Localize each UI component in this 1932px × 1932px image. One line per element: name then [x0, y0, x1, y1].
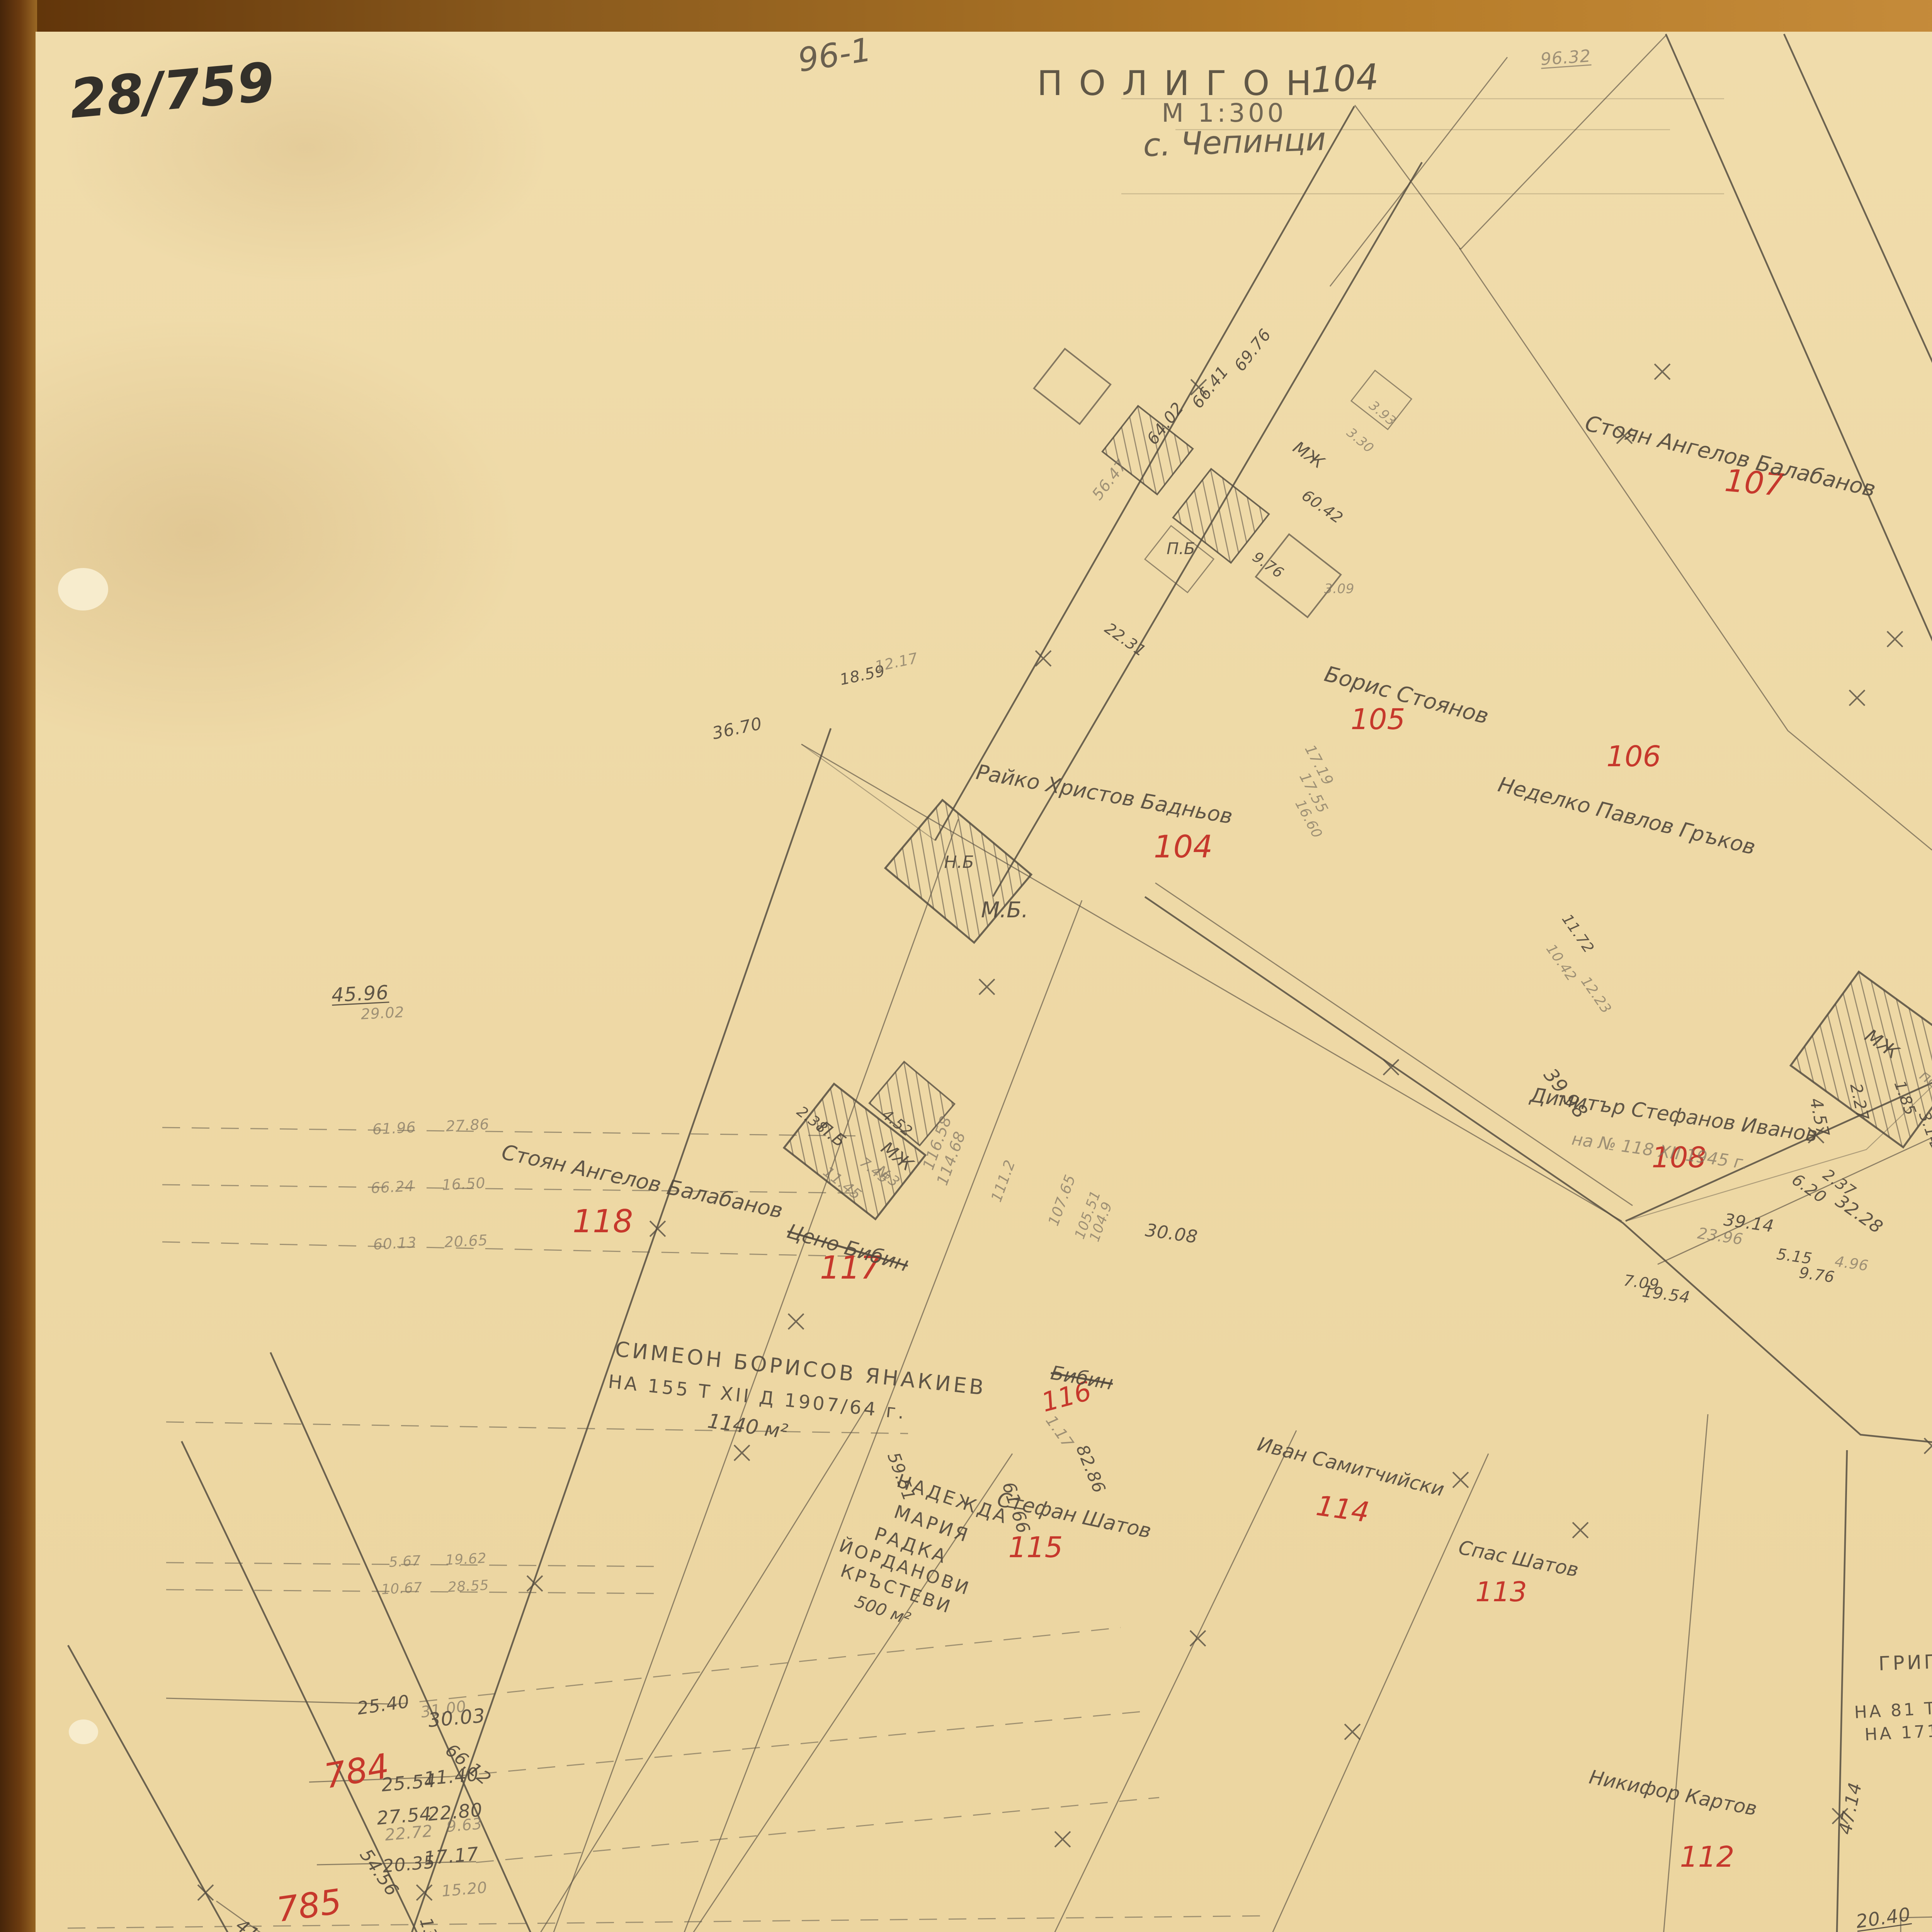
- measurement: 25.40: [356, 1692, 410, 1718]
- map-title-number: 104: [1310, 59, 1379, 98]
- parcel-number-118: 118: [573, 1206, 633, 1238]
- measurement: 2.38: [794, 1104, 830, 1136]
- parcel-owner-104: Райко Христов Бадньов: [975, 762, 1234, 827]
- measurement: 9.63: [446, 1816, 483, 1835]
- measurement: 1.17: [1043, 1413, 1076, 1451]
- measurement: 45.96: [331, 983, 389, 1005]
- measurement: 96.32: [1540, 48, 1591, 68]
- parcel-number-115: 115: [1008, 1533, 1063, 1562]
- measurement: 28.55: [447, 1578, 489, 1595]
- measurement: 9.76: [1798, 1265, 1836, 1285]
- measurement: 11.45: [821, 1164, 864, 1202]
- parcel-number-104: 104: [1154, 832, 1213, 862]
- building-label: М.Б.: [981, 900, 1028, 921]
- measurement: 12.23: [1578, 975, 1614, 1016]
- building-label: МЖ: [1862, 1026, 1902, 1062]
- parcel-owner-112: Никифор Картов: [1588, 1767, 1759, 1818]
- parcel-number-784: 784: [322, 1749, 392, 1794]
- measurement: 82.86: [1073, 1442, 1108, 1495]
- measurement: 66.41: [1189, 363, 1231, 411]
- measurement: 4.52: [879, 1107, 915, 1139]
- measurement: 69.76: [1231, 326, 1274, 374]
- measurement: 20.40: [1855, 1905, 1912, 1931]
- parcel-number-114: 114: [1315, 1492, 1371, 1526]
- measurement: 60.42: [1299, 488, 1345, 527]
- measurement: 16.50: [442, 1175, 486, 1192]
- measurement: 1.85: [1891, 1079, 1918, 1117]
- parcel-number-113: 113: [1475, 1578, 1527, 1605]
- parcel-note-111: НА 81 Т XXV Д 4665/67г. 933м²: [1854, 1687, 1932, 1721]
- parcel-area-value: 1140 м²: [706, 1411, 789, 1442]
- measurement: 36.70: [711, 715, 764, 742]
- measurement: 66.24: [371, 1179, 415, 1196]
- measurement: 29.02: [361, 1005, 405, 1022]
- measurement: 107.65: [1046, 1173, 1078, 1228]
- measurement: 5.15: [1776, 1247, 1813, 1267]
- measurement: 3.93: [1367, 399, 1398, 428]
- parcel-owner-113: Спас Шатов: [1457, 1537, 1580, 1580]
- measurement: 17.17: [423, 1845, 480, 1868]
- measurement: 15.20: [441, 1880, 488, 1899]
- map-scale: М 1:300: [1162, 100, 1287, 126]
- parcel-owner-105: Борис Стоянов: [1322, 663, 1491, 728]
- measurement: 30.03: [427, 1706, 486, 1730]
- measurement: 22.72: [384, 1823, 434, 1844]
- measurement: 10.98: [1927, 1137, 1932, 1185]
- measurement: 19.54: [1641, 1283, 1691, 1306]
- measurement: 25.54: [381, 1771, 437, 1794]
- measurement: 12.17: [874, 651, 919, 674]
- parcel-number-112: 112: [1680, 1843, 1734, 1871]
- measurement: 60.13: [373, 1235, 417, 1252]
- map-labels-layer: 1071051061041081101181171161151141131121…: [0, 0, 1932, 1932]
- parcel-owner-111: ГРИГОР НЕДЯКОВ: [1878, 1646, 1932, 1673]
- map-title: ПОЛИГОН: [1037, 66, 1328, 100]
- measurement: 22.31: [1102, 621, 1148, 660]
- parcel-number-105: 105: [1350, 705, 1405, 734]
- building-label: Н.Б: [944, 854, 974, 871]
- building-label: П.Б: [1167, 541, 1195, 557]
- measurement: 111.2: [989, 1158, 1017, 1204]
- parcel-owner-118: Стоян Ангелов Балабанов: [500, 1141, 785, 1221]
- measurement: 10.67: [381, 1581, 423, 1597]
- measurement: 27.86: [446, 1117, 490, 1134]
- measurement: 138.15: [417, 1915, 452, 1932]
- measurement: 61.96: [372, 1120, 416, 1137]
- map-village: с. Чепинци: [1143, 124, 1327, 162]
- measurement: 2.27: [1847, 1082, 1871, 1122]
- measurement: 56.47: [1090, 457, 1130, 503]
- measurement: 30.08: [1144, 1221, 1199, 1246]
- parcel-number-785: 785: [275, 1884, 344, 1927]
- measurement: 3.14: [1916, 1110, 1932, 1148]
- building-label: МЖ: [1290, 439, 1327, 471]
- measurement: 32.28: [1833, 1192, 1886, 1236]
- measurement: 10.42: [1544, 942, 1579, 984]
- measurement: 20.65: [444, 1233, 488, 1250]
- measurement: 47.14: [1836, 1781, 1864, 1836]
- parcel-owner-106: Неделко Павлов Гръков: [1496, 774, 1758, 858]
- measurement: 9.76: [1250, 549, 1286, 580]
- parcel-number-106: 106: [1606, 742, 1661, 771]
- measurement: 3.09: [1324, 582, 1354, 595]
- measurement: 5.67: [389, 1554, 422, 1570]
- measurement: 4.96: [1834, 1254, 1869, 1273]
- measurement: 64.02: [1144, 400, 1187, 447]
- measurement: 11.72: [1560, 912, 1597, 956]
- map-sheet: 1071051061041081101181171161151141131121…: [0, 0, 1932, 1932]
- building-label: пс: [1917, 1067, 1932, 1090]
- measurement: 19.62: [445, 1551, 487, 1568]
- parcel-owner-114: Иван Самитчийски: [1255, 1434, 1446, 1499]
- measurement: 3.30: [1344, 426, 1376, 455]
